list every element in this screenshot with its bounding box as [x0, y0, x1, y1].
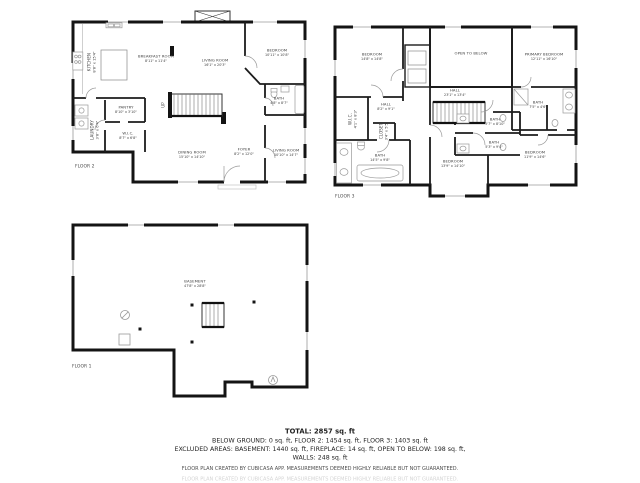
basement-staircase-icon — [202, 303, 224, 327]
disclaimer-text: FLOOR PLAN CREATED BY CUBICASA APP. MEAS… — [0, 466, 640, 472]
total-area-text: TOTAL: 2857 sq. ft — [0, 427, 640, 436]
room-label-basement: BASEMENT 47'8" x 28'8" — [184, 280, 206, 289]
room-dims: 3'4" x 5'5" — [384, 122, 389, 141]
room-label-bedroom: BEDROOM 10'11" x 10'8" — [265, 49, 289, 58]
room-dims: 8'2" x 9'1" — [377, 107, 395, 111]
room-dims: 23'1" x 13'4" — [444, 93, 466, 97]
room-dims: 4'1" x 8'3" — [353, 110, 358, 129]
room-dims: 11'9" x 14'6" — [524, 155, 546, 159]
room-label-breakfast-room: BREAKFAST ROOM 8'11" x 11'4" — [138, 55, 174, 64]
floor3-tag: FLOOR 3 — [335, 194, 354, 199]
floor1-plan: BASEMENT 47'8" x 28'8" FLOOR 1 — [68, 220, 313, 402]
floor2-plan: KITCHEN 8'8" x 15'4" BREAKFAST ROOM 8'11… — [68, 8, 313, 198]
room-dims: 13'9" x 14'10" — [441, 164, 465, 168]
fireplace-chimney-icon — [195, 11, 230, 22]
room-dims: 10'11" x 10'8" — [265, 53, 289, 57]
room-label-pantry: PANTRY 8'10" x 3'10" — [115, 106, 137, 115]
room-dims: 14'5" x 9'8" — [370, 158, 390, 162]
room-label-bath-mid-upper: BATH 5'7" x 8'10" — [485, 118, 505, 127]
room-dims: 5'7" x 8'10" — [485, 122, 505, 126]
room-dims: 3'8" x 6'4" — [95, 120, 100, 140]
room-label-kitchen: KITCHEN 8'8" x 15'4" — [87, 51, 97, 72]
room-dims: 14'8" x 14'8" — [361, 57, 383, 61]
room-dims: 5'3" x 9'4" — [485, 145, 503, 149]
room-label-hall-main: HALL 23'1" x 13'4" — [444, 89, 466, 98]
room-dims: 7'5" x 4'6" — [529, 105, 547, 109]
staircase-up-icon — [168, 92, 222, 118]
room-dims: 12'11" x 16'10" — [525, 57, 564, 61]
room-label-bedroom-bottom-right: BEDROOM 11'9" x 14'6" — [524, 151, 546, 160]
room-label-wic: W.I.C. 8'7" x 6'8" — [119, 132, 137, 141]
floor1-exterior-walls — [73, 225, 307, 396]
room-label-open-to-below: OPEN TO BELOW — [455, 52, 488, 57]
floor1-plan-drawing — [68, 220, 313, 402]
room-dims: 8'11" x 11'4" — [138, 59, 174, 63]
room-dims: 47'8" x 28'8" — [184, 284, 206, 288]
room-label-bath-mid-lower: BATH 5'3" x 9'4" — [485, 141, 503, 150]
room-label-laundry: LAUNDRY 3'8" x 6'4" — [90, 120, 100, 140]
walls-area-text: WALLS: 248 sq. ft — [0, 453, 640, 462]
floor2-tag: FLOOR 2 — [75, 164, 94, 169]
room-label-foyer: FOYER 8'2" x 12'0" — [234, 148, 254, 157]
floor-plan-page: { "page": { "background": "#ffffff", "wa… — [0, 0, 640, 480]
room-label-dining-room: DINING ROOM 15'10" x 14'10" — [178, 151, 206, 160]
area-summary: TOTAL: 2857 sq. ft BELOW GROUND: 0 sq. f… — [0, 427, 640, 483]
room-label-bath-primary: BATH 7'5" x 4'6" — [529, 101, 547, 110]
room-dims: 8'7" x 6'8" — [119, 136, 137, 140]
room-label-primary-bedroom: PRIMARY BEDROOM 12'11" x 16'10" — [525, 53, 564, 62]
floor3-plan: BEDROOM 14'8" x 14'8" OPEN TO BELOW PRIM… — [333, 25, 583, 205]
floor1-tag: FLOOR 1 — [72, 364, 91, 369]
room-label-bedroom-top-left: BEDROOM 14'8" x 14'8" — [361, 53, 383, 62]
room-label-closet-small: CLOSET 3'4" x 5'5" — [379, 122, 389, 141]
room-label-living-room-main: LIVING ROOM 16'1" x 20'3" — [202, 59, 229, 68]
room-dims: 15'10" x 14'10" — [178, 155, 206, 159]
room-dims: 16'1" x 20'3" — [202, 63, 229, 67]
room-dims: 8'10" x 3'10" — [115, 110, 137, 114]
room-label-bath-left: BATH 14'5" x 9'8" — [370, 154, 390, 163]
floor-areas-text: BELOW GROUND: 0 sq. ft, FLOOR 2: 1454 sq… — [0, 436, 640, 445]
room-label-living-room-small: LIVING ROOM 10'10" x 14'7" — [273, 149, 300, 158]
room-label-bedroom-bottom-middle: BEDROOM 13'9" x 14'10" — [441, 160, 465, 169]
room-label-hall-left: HALL 8'2" x 9'1" — [377, 103, 395, 112]
room-dims: 10'10" x 14'7" — [273, 153, 300, 157]
excluded-areas-text: EXCLUDED AREAS: BASEMENT: 1440 sq. ft, F… — [0, 445, 640, 454]
room-dims: 8'2" x 12'0" — [234, 152, 254, 156]
room-name: OPEN TO BELOW — [455, 52, 488, 57]
room-dims: 8'8" x 15'4" — [92, 51, 97, 72]
room-dims: 4'8" x 8'7" — [270, 101, 288, 105]
room-label-bath: BATH 4'8" x 8'7" — [270, 97, 288, 106]
stairs-up-label: UP — [161, 102, 166, 108]
room-label-wic-left: W.I.C. 4'1" x 8'3" — [348, 110, 358, 129]
room-name: UP — [161, 102, 166, 108]
